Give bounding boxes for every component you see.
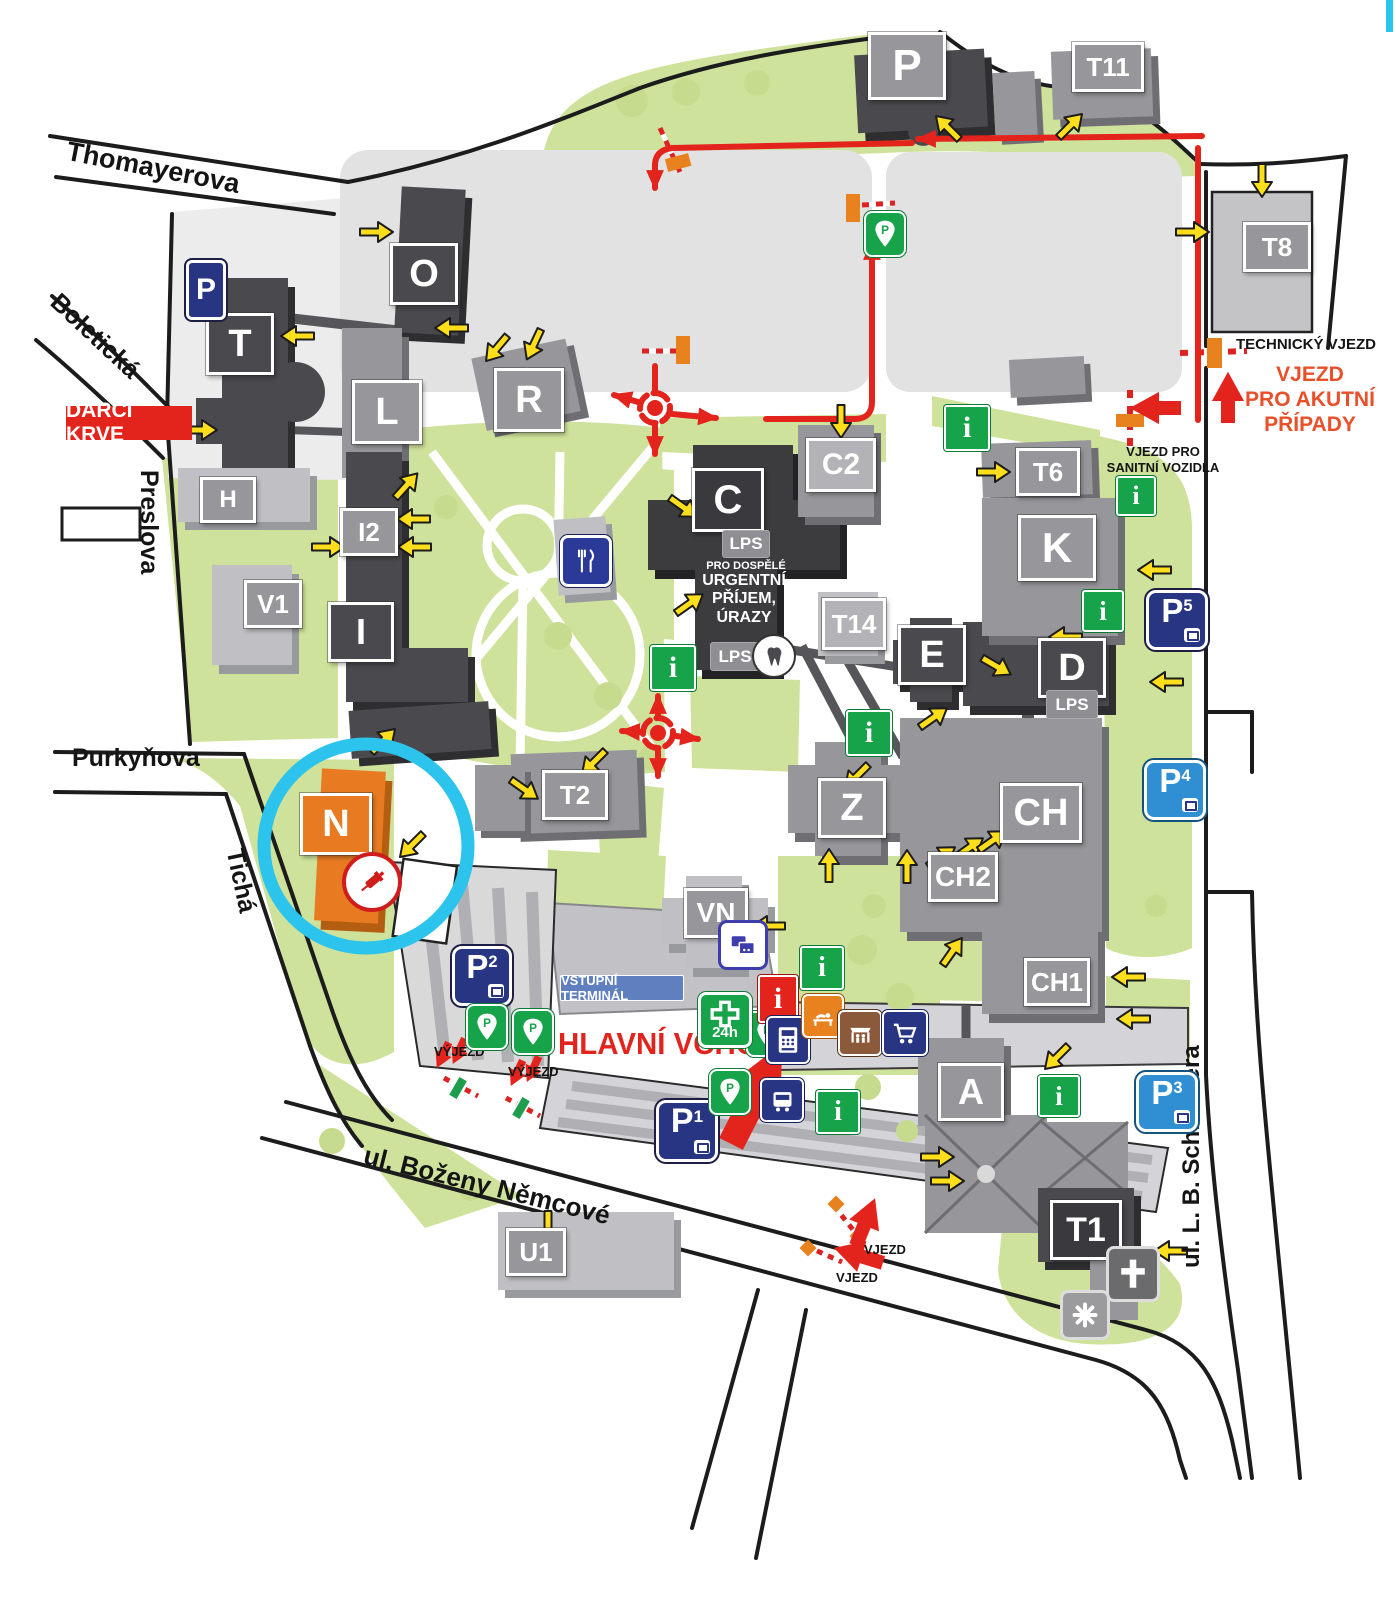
building-h-label: H: [200, 477, 256, 523]
parking-sign-p4: P4: [1144, 760, 1206, 820]
building-e-label: E: [898, 625, 966, 685]
parking-letter: P: [1151, 1075, 1173, 1111]
payment-machine-icon: [488, 984, 504, 998]
parking-number: 4: [1181, 767, 1190, 786]
dental-emergency-icon: [752, 634, 796, 678]
building-c-label: C: [692, 468, 764, 532]
building-r-label: R: [494, 368, 564, 432]
acute-entrance-label: VJEZD PRO AKUTNÍ PŘÍPADY: [1230, 362, 1390, 438]
payment-machine-icon: [1184, 628, 1200, 642]
payment-machine-icon: [1182, 798, 1198, 812]
urgent-line1: URGENTNÍ: [688, 572, 800, 590]
parking-pin-icon: P: [466, 1004, 508, 1050]
parking-letter: P: [1161, 593, 1183, 629]
building-i-label: I: [328, 602, 394, 662]
vaccination-icon: [342, 852, 402, 912]
info-icon: i: [1038, 1075, 1080, 1117]
entrance-label-1: VJEZD: [864, 1242, 906, 1257]
building-c2-label: C2: [806, 438, 876, 492]
building-t-label: T: [206, 313, 274, 375]
building-ch1-label: CH1: [1024, 958, 1090, 1006]
ambulance-entrance-label: VJEZD PRO SANITNÍ VOZIDLA: [1098, 444, 1228, 477]
info-icon: i: [944, 405, 990, 451]
pharmacy-24h-icon: 24h: [698, 992, 752, 1048]
restaurant-icon: [560, 535, 612, 587]
urgent-line2: PŘÍJEM,: [688, 590, 800, 608]
building-a-label: A: [938, 1063, 1004, 1121]
building-t2-label: T2: [542, 770, 608, 820]
building-v1-label: V1: [244, 580, 302, 628]
building-p-garage-label: P: [868, 32, 946, 100]
parking-sign-street: P: [186, 260, 226, 320]
pharmacy-24h-text: 24h: [712, 1024, 738, 1041]
entrance-label-2: VJEZD: [836, 1270, 878, 1285]
exit-label-2: VÝJEZD: [508, 1064, 559, 1079]
building-n-label: N: [300, 793, 372, 855]
parking-sign-p3: P3: [1136, 1072, 1198, 1132]
parking-pin-icon: P: [864, 211, 906, 257]
info-icon: i: [1116, 476, 1156, 516]
svg-text:P: P: [726, 1082, 734, 1095]
technical-entrance-label: TECHNICKÝ VJEZD: [1236, 336, 1376, 353]
chapel-cross-icon: [1106, 1246, 1160, 1302]
building-u1-label: U1: [506, 1228, 566, 1276]
parking-letter: P: [671, 1103, 694, 1140]
svg-text:P: P: [881, 224, 889, 237]
parking-number: 2: [488, 953, 497, 972]
payment-machine-icon: [694, 1140, 710, 1154]
info-icon: i: [1082, 590, 1124, 632]
acute-line3: PŘÍPADY: [1230, 412, 1390, 437]
building-ch2-label: CH2: [928, 852, 998, 902]
ambulance-line2: SANITNÍ VOZIDLA: [1098, 460, 1228, 476]
parking-number: 1: [694, 1107, 703, 1127]
entry-terminal-label: VSTUPNÍ TERMINÁL: [560, 975, 684, 1001]
building-o-label: O: [390, 243, 458, 305]
parking-pin-icon: P: [512, 1009, 554, 1055]
building-t14-label: T14: [822, 598, 886, 650]
lps-label-adults: LPS: [722, 530, 770, 558]
parking-letter: P: [466, 949, 488, 985]
lps-label-d: LPS: [1046, 690, 1098, 719]
building-d-label: D: [1038, 638, 1106, 698]
street-preslova: Preslova: [134, 470, 163, 574]
building-z-label: Z: [818, 778, 886, 838]
building-t6-label: T6: [1016, 448, 1080, 496]
building-ch-label: CH: [1000, 783, 1082, 843]
info-icon: i: [846, 710, 892, 756]
info-icon: i: [800, 946, 844, 990]
parking-sign-p2: P2: [452, 946, 512, 1006]
svg-text:P: P: [483, 1017, 491, 1030]
bus-stop-icon: [760, 1078, 804, 1122]
building-i2-label: I2: [340, 508, 398, 556]
building-t8-label: T8: [1243, 222, 1311, 272]
urgent-care-label: URGENTNÍ PŘÍJEM, ÚRAZY: [688, 572, 800, 627]
parking-number: 5: [1183, 597, 1192, 616]
blood-donors-label: DÁRCI KRVE: [66, 406, 192, 440]
parking-letter: P: [196, 274, 216, 306]
building-t11-label: T11: [1072, 42, 1144, 92]
acute-line2: PRO AKUTNÍ: [1230, 387, 1390, 412]
parking-pin-icon: P: [709, 1069, 751, 1115]
shop-icon: [838, 1010, 882, 1056]
kiosk-icon: [718, 920, 768, 970]
street-purkynova: Purkyňova: [72, 744, 200, 773]
parking-number: 3: [1173, 1079, 1182, 1098]
svg-text:P: P: [529, 1022, 537, 1035]
info-icon: i: [650, 645, 696, 691]
building-k-label: K: [1018, 515, 1096, 581]
supermarket-icon: [882, 1010, 928, 1056]
building-l-label: L: [352, 380, 422, 444]
parking-sign-p5: P5: [1146, 590, 1208, 650]
parking-letter: P: [1159, 763, 1181, 799]
acute-line1: VJEZD: [1230, 362, 1390, 387]
payment-machine-icon: [1174, 1110, 1190, 1124]
morgue-asterisk-icon: [1060, 1290, 1110, 1340]
ambulance-line1: VJEZD PRO: [1098, 444, 1228, 460]
urgent-line3: ÚRAZY: [688, 609, 800, 627]
lps-adults-subtitle: PRO DOSPĚLÉ: [700, 560, 792, 572]
info-icon: i: [816, 1090, 860, 1134]
hospital-campus-map: .bd{fill:#4a4a4e}.bds{fill:#2e2e31}.bg{f…: [0, 0, 1396, 1600]
corner-mark: [1386, 0, 1393, 32]
